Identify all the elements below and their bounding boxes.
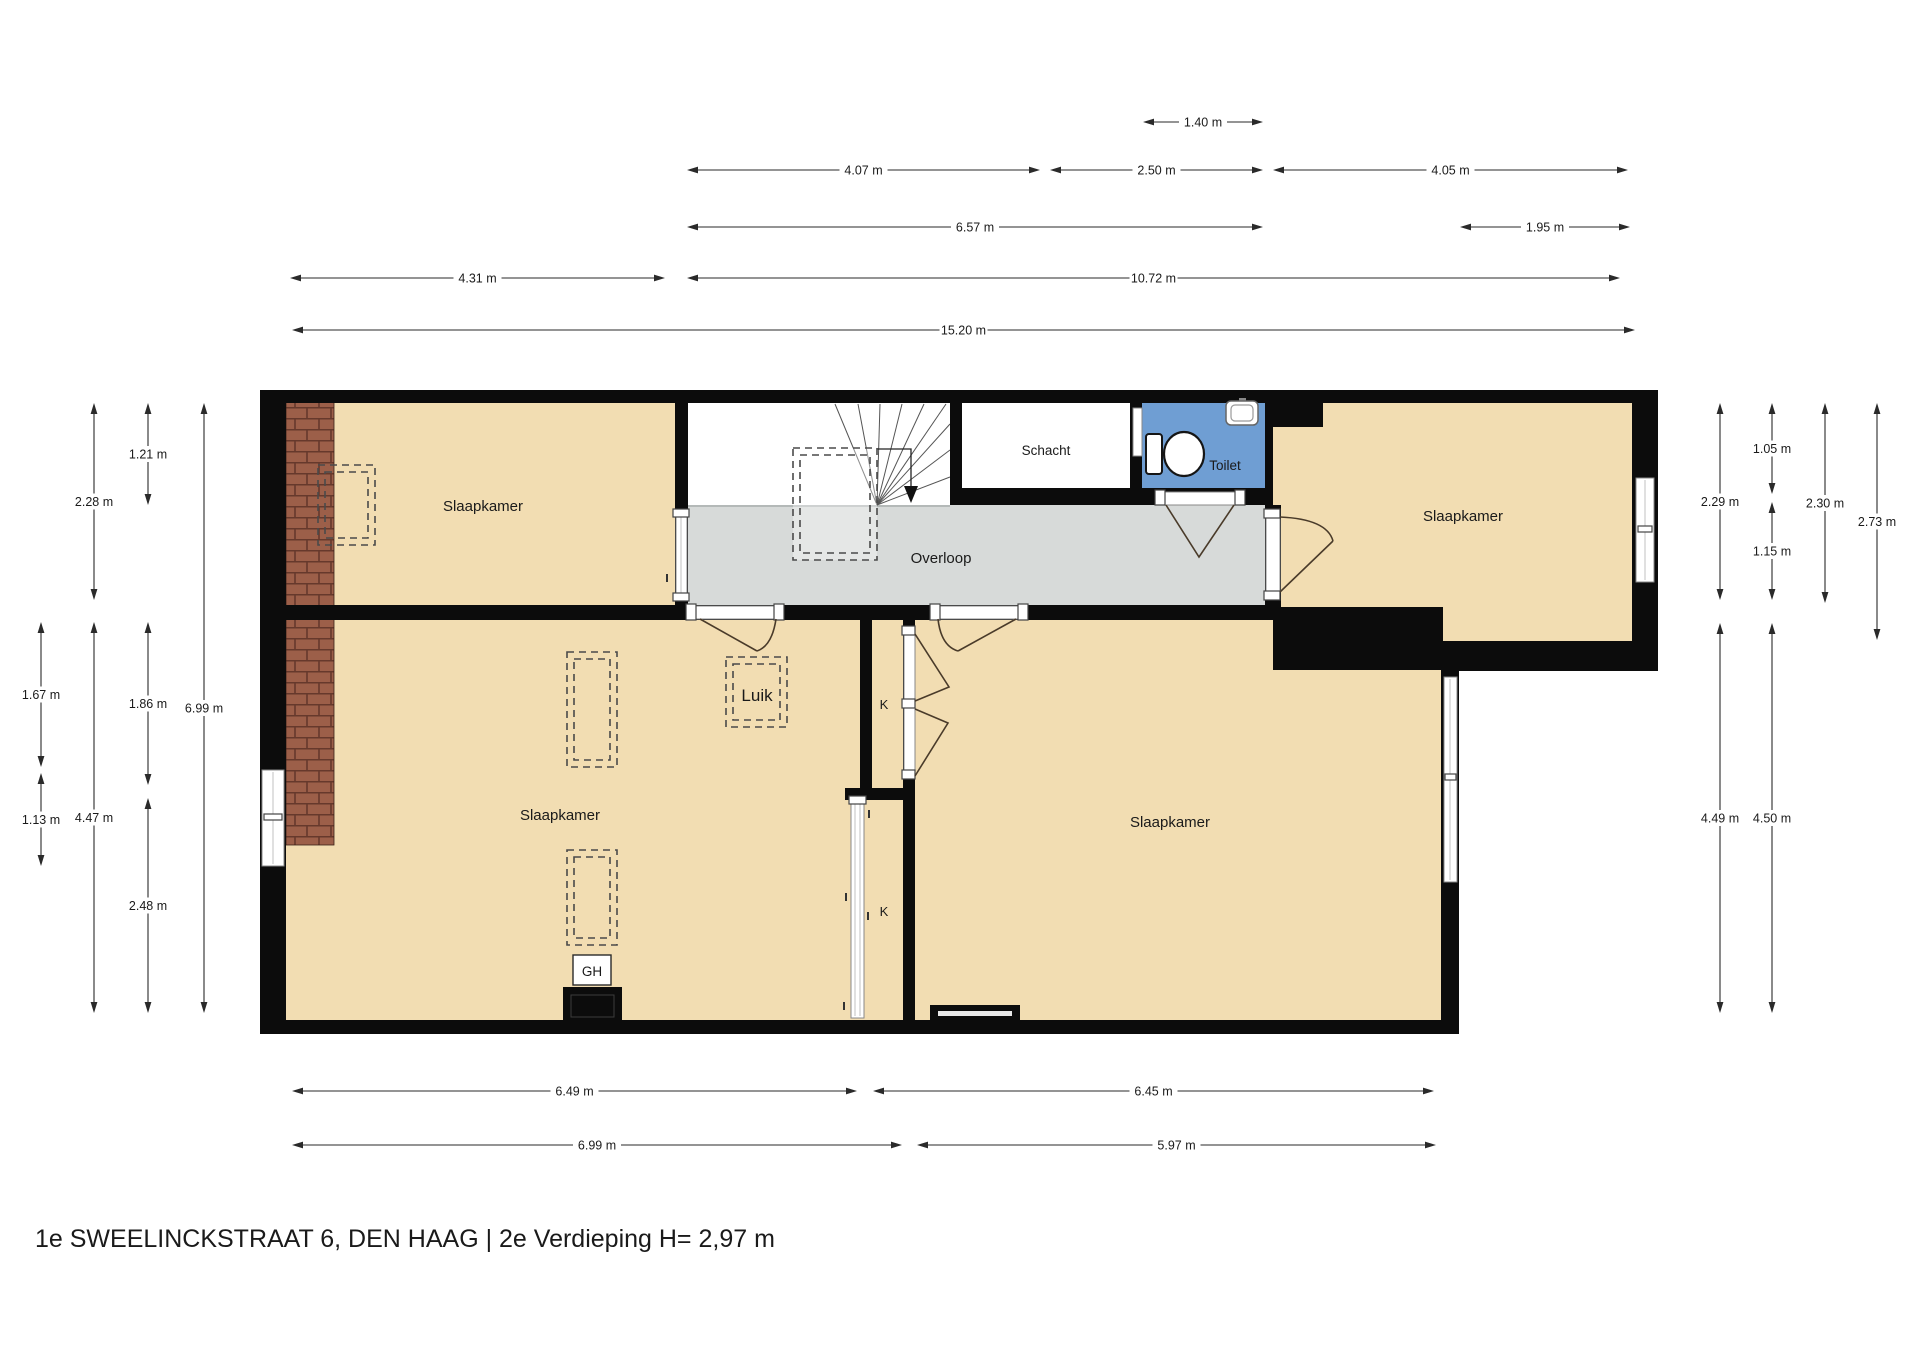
dimension: 1.86 m xyxy=(124,622,172,785)
dimension: 2.73 m xyxy=(1853,403,1901,640)
dimension-label: 6.49 m xyxy=(555,1085,593,1099)
dimension-label: 15.20 m xyxy=(941,324,986,338)
room-landing xyxy=(688,505,1265,605)
door-opening-bedroom-right xyxy=(1266,517,1280,593)
bottom-window-strip xyxy=(938,1011,1012,1016)
dimension: 6.99 m xyxy=(292,1137,902,1153)
dimension: 10.72 m xyxy=(687,270,1620,286)
room-label-closet-bottom: K xyxy=(880,904,889,919)
dimension: 4.05 m xyxy=(1273,162,1628,178)
dimension-label: 1.05 m xyxy=(1753,442,1791,456)
door-opening-bedroom-bl xyxy=(694,606,776,619)
dimension: 4.49 m xyxy=(1696,623,1744,1013)
dimension: 1.67 m xyxy=(17,622,65,767)
room-label-bedroom-bottom-right: Slaapkamer xyxy=(1130,814,1210,831)
dimension: 1.21 m xyxy=(124,403,172,505)
dimension: 2.48 m xyxy=(124,798,172,1013)
dimension: 1.05 m xyxy=(1748,403,1796,494)
geyser-duct xyxy=(563,987,622,1020)
dimension-label: 4.05 m xyxy=(1431,164,1469,178)
dimension-label: 1.40 m xyxy=(1184,116,1222,130)
dimension-label: 1.13 m xyxy=(22,813,60,827)
dimension-label: 1.21 m xyxy=(129,448,167,462)
brick-wall-column xyxy=(286,398,334,845)
dimension: 1.40 m xyxy=(1143,114,1263,130)
dimension-label: 6.99 m xyxy=(185,702,223,716)
room-label-toilet: Toilet xyxy=(1209,458,1241,473)
dimension-label: 2.73 m xyxy=(1858,515,1896,529)
geyser-label: GH xyxy=(582,964,602,979)
dimension-label: 1.95 m xyxy=(1526,221,1564,235)
closet-slider-strip xyxy=(851,800,864,1018)
geyser-label-box: GH xyxy=(573,955,611,985)
stair-void-outline xyxy=(793,448,877,560)
dimension: 6.57 m xyxy=(687,219,1263,235)
toilet-fixture-icon xyxy=(1146,432,1204,476)
room-label-closet-top: K xyxy=(880,697,889,712)
dimension-label: 1.15 m xyxy=(1753,545,1791,559)
dimension-label: 4.49 m xyxy=(1701,812,1739,826)
dimension: 4.07 m xyxy=(687,162,1040,178)
dimension-label: 2.28 m xyxy=(75,495,113,509)
dimension: 6.45 m xyxy=(873,1083,1434,1099)
dimension-label: 1.67 m xyxy=(22,688,60,702)
floor-plan-canvas: Slaapkamer Slaapkamer Slaapkamer Slaapka… xyxy=(0,0,1920,1358)
room-bedroom-top-right xyxy=(1273,403,1632,607)
dimension-label: 10.72 m xyxy=(1131,272,1176,286)
dimension-label: 2.50 m xyxy=(1137,164,1175,178)
door-opening-bedroom-br xyxy=(938,606,1020,619)
dimension-label: 4.50 m xyxy=(1753,812,1791,826)
plan-title: 1e SWEELINCKSTRAAT 6, DEN HAAG | 2e Verd… xyxy=(35,1225,775,1253)
dimension: 15.20 m xyxy=(292,322,1635,338)
sink-icon xyxy=(1226,398,1258,425)
dimension: 2.28 m xyxy=(70,403,118,600)
dimension-label: 4.31 m xyxy=(458,272,496,286)
dimension: 2.30 m xyxy=(1801,403,1849,603)
dimension-label: 6.99 m xyxy=(578,1139,616,1153)
room-label-shaft: Schacht xyxy=(1022,443,1071,458)
room-label-bedroom-bottom-left: Slaapkamer xyxy=(520,807,600,824)
room-bedroom-top-right-ext xyxy=(1443,607,1632,641)
door-opening-toilet xyxy=(1163,492,1237,505)
room-label-hatch: Luik xyxy=(741,686,773,705)
dimension: 5.97 m xyxy=(917,1137,1436,1153)
dimension-label: 2.30 m xyxy=(1806,497,1844,511)
dimension-label: 6.57 m xyxy=(956,221,994,235)
dimension: 1.13 m xyxy=(17,773,65,866)
dimension: 2.29 m xyxy=(1696,403,1744,600)
dimension: 4.47 m xyxy=(70,622,118,1013)
dimension-label: 4.47 m xyxy=(75,811,113,825)
room-label-landing: Overloop xyxy=(911,550,972,567)
room-label-bedroom-top-right: Slaapkamer xyxy=(1423,508,1503,525)
dimension: 2.50 m xyxy=(1050,162,1263,178)
dimension-label: 1.86 m xyxy=(129,697,167,711)
dimension-label: 2.29 m xyxy=(1701,495,1739,509)
dimension-label: 2.48 m xyxy=(129,899,167,913)
dimension: 6.99 m xyxy=(180,403,228,1013)
dimension: 1.15 m xyxy=(1748,502,1796,600)
dimension-label: 4.07 m xyxy=(844,164,882,178)
dimension-label: 5.97 m xyxy=(1157,1139,1195,1153)
shaft-access-panel xyxy=(1133,408,1142,456)
dimension: 6.49 m xyxy=(292,1083,857,1099)
room-label-bedroom-top-left: Slaapkamer xyxy=(443,498,523,515)
dimension-label: 6.45 m xyxy=(1134,1085,1172,1099)
dimension: 1.95 m xyxy=(1460,219,1630,235)
dimension: 4.31 m xyxy=(290,270,665,286)
dimension: 4.50 m xyxy=(1748,623,1796,1013)
